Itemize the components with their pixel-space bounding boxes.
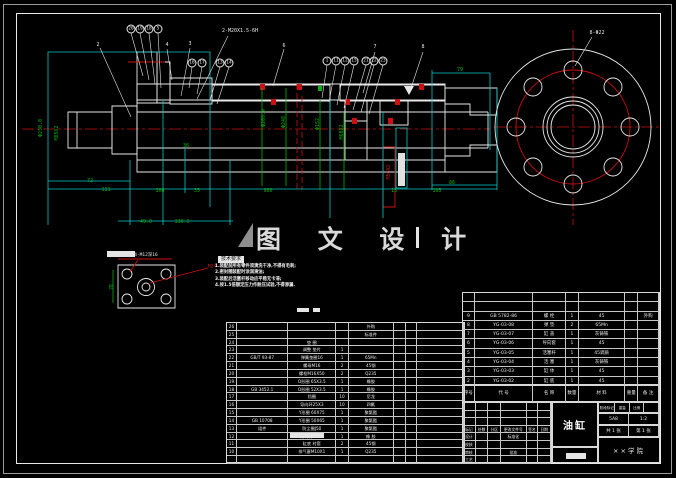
table-row: 9GB 5782-86螺 栓145外购 [463,312,659,321]
table-cell [406,393,418,400]
table-row [463,302,659,311]
dimension-label: M85X2 [54,125,60,140]
table-cell: 20 [227,370,237,377]
table-cell [406,378,418,385]
table-row: 5YG-03-05活塞杆145调质 [463,349,659,358]
table-cell [406,346,418,353]
table-cell: 2 [463,377,475,385]
table-cell: 1 [566,377,579,385]
table-cell [625,330,638,338]
part-callout-balloon: 17 [198,59,207,68]
table-cell: 1 [566,349,579,357]
table-cell [638,339,659,347]
table-cell [288,323,336,330]
table-cell [527,411,539,418]
table-cell [538,433,551,440]
table-cell [237,440,289,447]
table-cell [237,409,289,416]
part-callout-balloon: 14 [225,59,234,68]
table-row: 标记处数分区更改文件号签名日期 [463,426,551,434]
table-cell [527,433,539,440]
dimension-label: Φ230.0 [38,119,44,137]
title-block-mark [566,453,586,459]
table-cell [501,456,526,463]
table-row: 13组件防尘圈J501聚氨酯 [227,425,464,433]
table-cell: 重量 [615,403,630,413]
title-block-signature-grid: 标记处数分区更改文件号签名日期设计标准化校核审核批准工艺 [462,402,552,463]
dimension-label: 36 [183,143,189,149]
table-cell: 23 [227,346,237,353]
table-cell: 45 [579,312,626,320]
table-cell [488,418,501,425]
table-cell [527,403,539,410]
table-cell [349,339,394,346]
table-cell: 1 [566,330,579,338]
table-cell [394,448,406,455]
table-cell [638,321,659,329]
table-cell [417,425,464,432]
table-row: 16导向环25X310四氟 [227,401,464,409]
table-cell: Q235 [349,370,394,377]
table-row: 19O形圈 65X3.51橡胶 [227,378,464,386]
title-block-stage-row: 阶段标记重量比例 [598,402,660,413]
table-cell: 挡圈 [288,393,336,400]
table-cell [394,386,406,393]
table-cell [406,440,418,447]
table-cell [527,441,539,448]
table-cell [476,411,489,418]
table-row: 20螺栓M16X502Q235 [227,370,464,378]
dimension-label: 35 [194,188,200,194]
table-cell: 45 [579,367,626,375]
table-cell [463,302,475,310]
table-cell: 垫 圈 [288,339,336,346]
table-cell [406,401,418,408]
table-cell: 45钢 [349,440,394,447]
table-row: 校核 [463,441,551,449]
table-cell [394,378,406,385]
table-cell: 15 [227,409,237,416]
table-cell [625,321,638,329]
table-cell [566,293,579,301]
table-row: 4YG-03-04活 塞1灰铸铁 [463,358,659,367]
table-cell: 8 [463,321,475,329]
table-cell: 外购 [349,323,394,330]
table-cell [625,377,638,385]
table-row [463,411,551,419]
table-cell [476,449,489,456]
table-row [463,293,659,302]
table-cell: 灰铸铁 [579,330,626,338]
table-cell: 签名 [527,426,539,433]
table-cell [417,346,464,353]
table-cell [406,433,418,440]
table-cell: 聚氨酯 [349,409,394,416]
watermark-bracket [416,227,419,248]
title-block-scale-row: 5A81:2 [598,413,660,425]
table-cell: 18 [227,386,237,393]
table-cell [625,293,638,301]
table-cell: 弹簧垫圈16 [288,354,336,361]
table-cell [488,449,501,456]
table-row: 审核批准 [463,449,551,457]
parts-list-table: 9GB 5782-86螺 栓145外购8YG-03-08弹 垫265Mn7YG-… [462,292,660,385]
part-callout-balloon: 18 [145,25,154,34]
table-cell [417,440,464,447]
table-row: 14GB 10708Y形圈 50X651聚氨酯 [227,417,464,425]
table-cell: 16 [227,401,237,408]
table-cell: YG-03-05 [475,349,533,357]
table-cell: 螺母M16 [288,362,336,369]
table-cell: GB 5782-86 [475,312,533,320]
table-cell [579,302,626,310]
table-cell: 1 [336,409,349,416]
table-cell [394,354,406,361]
table-cell: 45 [579,377,626,385]
table-cell: 缸 底 [533,377,566,385]
part-callout: 8 [421,44,424,50]
table-cell: 14 [227,417,237,424]
table-cell [237,370,289,377]
table-cell [237,401,289,408]
table-cell [406,425,418,432]
table-cell: YG-03-02 [475,377,533,385]
table-cell: 标准件 [349,331,394,338]
table-cell: Y形圈 50X65 [288,417,336,424]
table-cell [475,293,533,301]
table-row: 26外购 [227,323,464,331]
table-cell [488,441,501,448]
table-cell: 45 [579,339,626,347]
table-cell: 名 称 [533,386,566,402]
table-cell [417,378,464,385]
table-cell: 橡胶 [349,378,394,385]
table-cell: 1:2 [629,414,659,425]
part-callout: 7 [373,44,376,50]
table-cell: 设计 [463,433,476,440]
table-cell [227,456,237,463]
table-cell: 19 [227,378,237,385]
table-cell: 24 [227,339,237,346]
table-cell: 1 [336,354,349,361]
table-cell: 3 [463,367,475,375]
table-cell [417,339,464,346]
table-cell [394,409,406,416]
table-cell [475,302,533,310]
table-cell: 批准 [501,449,526,456]
dimension-label: 70 [110,284,115,289]
table-cell [336,456,349,463]
dimension-label: 900 [263,188,272,194]
table-cell [417,417,464,424]
table-cell [237,362,289,369]
table-row: 24垫 圈 [227,339,464,347]
table-cell [638,377,659,385]
table-cell: 65Mn [349,354,394,361]
table-row [227,456,464,464]
table-cell [394,346,406,353]
table-cell: 1 [336,433,349,440]
table-cell: YG-03-06 [475,339,533,347]
table-cell [533,293,566,301]
part-callout-balloon: 13 [216,59,225,68]
table-cell [488,403,501,410]
table-row: 11缸底 衬套245钢 [227,440,464,448]
table-cell: 导向环25X3 [288,401,336,408]
table-cell: 1 [336,448,349,455]
table-cell [394,401,406,408]
table-cell [488,433,501,440]
organization-name: ××学院 [598,437,660,463]
table-cell [417,409,464,416]
part-callout-balloon: 20 [127,25,136,34]
table-cell: 阶段标记 [599,403,615,413]
table-cell [476,456,489,463]
table-cell: 1 [336,346,349,353]
table-cell [625,312,638,320]
table-cell [394,456,406,463]
part-callout-balloon: 22 [370,57,379,66]
table-cell: 13 [227,425,237,432]
dimension-label: 106 [155,188,164,194]
table-cell [406,386,418,393]
table-cell: 代 号 [475,386,533,402]
table-cell [417,362,464,369]
table-cell [394,425,406,432]
table-cell [237,433,289,440]
watermark-triangle [238,223,253,247]
table-cell [336,331,349,338]
table-cell: 12 [227,433,237,440]
table-cell: 21 [227,362,237,369]
part-callout-balloon: 23 [379,57,388,66]
table-cell [638,293,659,301]
table-cell: 共 1 张 [599,426,629,437]
table-cell [406,456,418,463]
bolt-hole-label: 8-Φ22 [589,30,604,36]
dimension-label: 49.0 [140,219,152,225]
table-cell [417,393,464,400]
table-cell [336,323,349,330]
table-cell: 斯特封75X8 [288,433,336,440]
table-cell [527,456,539,463]
dimension-label: M56X2 [386,164,392,179]
table-cell [417,354,464,361]
table-cell [237,331,289,338]
table-cell [625,302,638,310]
table-cell: 组件 [237,425,289,432]
table-cell: 外购 [638,312,659,320]
table-cell: 1 [566,312,579,320]
table-cell: 聚氨酯 [349,417,394,424]
table-cell [417,433,464,440]
table-cell [394,370,406,377]
table-cell: 10 [227,448,237,455]
table-cell [463,293,475,301]
table-row: 23调整 垫片1 [227,346,464,354]
table-row: 17挡圈10尼龙 [227,393,464,401]
table-cell: 11 [227,440,237,447]
table-cell: 螺 栓 [533,312,566,320]
technical-notes: 技术要求 1.装配前所有零件须清洗干净,不得有毛刺;2.密封圈装配时涂润滑油;3… [215,245,325,290]
table-cell: 材 料 [579,386,626,402]
detail-view-label-bar [107,251,135,257]
table-cell: 比例 [630,403,645,413]
table-cell: YG-03-04 [475,358,533,366]
table-cell: 活塞杆 [533,349,566,357]
table-cell: 17 [227,393,237,400]
table-cell: GB/T 93-87 [237,354,289,361]
drawing-title: 油缸 [552,402,598,447]
table-cell: 1 [566,367,579,375]
table-cell: O形圈 52X3.5 [288,386,336,393]
table-cell: 1 [336,378,349,385]
table-cell [237,346,289,353]
table-cell [417,401,464,408]
table-cell [394,440,406,447]
table-cell [406,370,418,377]
table-cell: 2 [336,362,349,369]
part-callout-balloon: 1 [323,57,332,66]
table-cell [394,331,406,338]
table-cell [237,448,289,455]
table-cell [476,441,489,448]
table-cell: Q235 [349,448,394,455]
table-cell [237,393,289,400]
table-cell [625,358,638,366]
table-cell [406,417,418,424]
dimension-label: 79 [457,67,463,73]
dimension-label: 111 [101,187,110,193]
table-cell [463,418,476,425]
dimension-label: Φ248 [281,116,287,128]
table-cell: 10 [336,401,349,408]
table-cell [406,409,418,416]
tech-notes-title: 技术要求 [218,256,244,263]
table-cell: 1 [336,386,349,393]
table-cell: 缸 盖 [533,330,566,338]
part-callout-balloon: 16 [188,59,197,68]
text-bit [313,308,320,312]
table-cell [349,346,394,353]
table-cell [394,417,406,424]
table-row: 3YG-03-03缸 体145 [463,367,659,376]
table-cell: 2 [336,370,349,377]
table-row: 18GB 3452.1O形圈 52X3.51橡胶 [227,386,464,394]
table-cell [538,449,551,456]
table-cell [488,456,501,463]
table-cell: 活 塞 [533,358,566,366]
table-cell: 7 [463,330,475,338]
table-cell [406,354,418,361]
table-cell: 分区 [488,426,501,433]
table-cell [566,302,579,310]
dimension-label: Φ152 [315,118,321,130]
table-cell: 更改文件号 [501,426,526,433]
table-cell [638,302,659,310]
table-cell: 四氟 [349,401,394,408]
dimension-label: 105 [432,188,441,194]
table-cell: 45调质 [579,349,626,357]
table-cell: 标记 [463,426,476,433]
table-cell: 缸底 衬套 [288,440,336,447]
tech-notes-lines: 1.装配前所有零件须清洗干净,不得有毛刺;2.密封圈装配时涂润滑油;3.装配后活… [215,264,325,290]
table-cell: 4 [463,358,475,366]
table-cell [394,393,406,400]
table-row: 序号代 号名 称数量材 料重量备 注 [463,386,659,403]
part-callout-balloon: 19 [136,25,145,34]
table-cell [638,358,659,366]
dimension-label: Φ209.4 [261,109,267,127]
table-cell: 排气塞M10X1 [288,448,336,455]
table-cell [237,339,289,346]
table-cell: O形圈 65X3.5 [288,378,336,385]
table-cell [488,411,501,418]
table-cell [533,302,566,310]
dimension-label: M60X2 [339,124,345,139]
table-cell: 26 [227,323,237,330]
table-cell: 6 [463,339,475,347]
table-cell [625,349,638,357]
dimension-label: 86 [449,180,455,186]
part-callout: 4 [165,42,168,48]
table-cell: 螺栓M16X50 [288,370,336,377]
table-row: 22GB/T 93-87弹簧垫圈16165Mn [227,354,464,362]
table-cell [527,449,539,456]
title-block-sheet-row: 共 1 张第 1 张 [598,425,660,437]
part-callout-balloon: 12 [341,57,350,66]
table-cell: 审核 [463,449,476,456]
table-cell [538,441,551,448]
table-cell [463,403,476,410]
table-cell [406,362,418,369]
table-cell: 2 [336,440,349,447]
parts-list-header: 序号代 号名 称数量材 料重量备 注 [462,385,660,402]
table-cell: YG-03-03 [475,367,533,375]
table-cell [638,367,659,375]
table-cell [538,418,551,425]
table-cell: 1 [566,358,579,366]
part-callout: 2 [96,42,99,48]
table-cell [406,331,418,338]
table-cell [394,323,406,330]
table-cell [625,367,638,375]
part-callout-balloon: 5 [154,25,163,34]
table-cell [237,378,289,385]
table-cell: 标准化 [501,433,526,440]
table-row: 15Y形圈 60X751聚氨酯 [227,409,464,417]
part-callout-balloon: 15 [350,57,359,66]
bom-table-left: 26外购25标准件24垫 圈23调整 垫片122GB/T 93-87弹簧垫圈16… [226,322,465,463]
table-cell [237,323,289,330]
table-cell [476,403,489,410]
table-cell [237,456,289,463]
part-callout: 6 [282,43,285,49]
table-cell [394,362,406,369]
table-cell [501,403,526,410]
table-cell [417,456,464,463]
table-cell: 橡 胶 [349,433,394,440]
table-cell [349,456,394,463]
table-cell [417,386,464,393]
table-cell: 数量 [566,386,579,402]
table-cell [336,339,349,346]
table-cell: 工艺 [463,456,476,463]
table-cell: 备 注 [638,386,659,402]
table-cell [644,403,659,413]
table-cell: 65Mn [579,321,626,329]
table-cell: 灰铸铁 [579,358,626,366]
